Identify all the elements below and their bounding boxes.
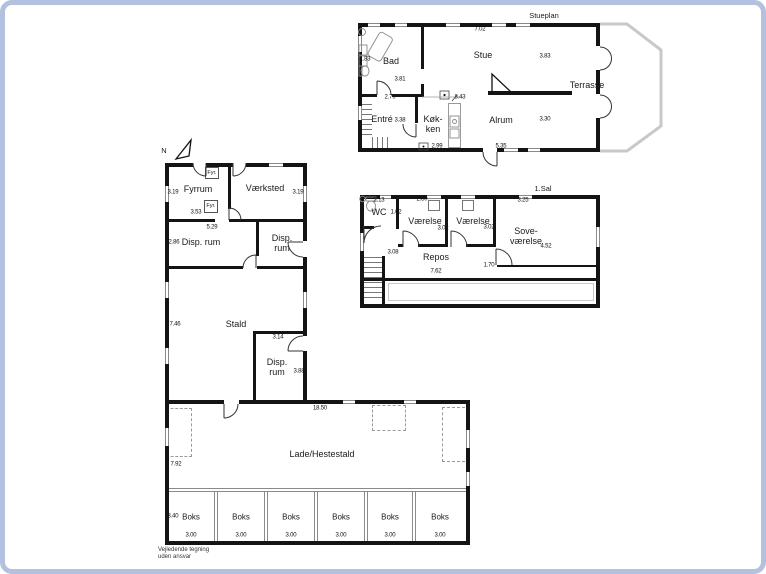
dim-wc-width: 2.13 [374, 198, 385, 205]
boks-partition [412, 492, 416, 541]
kitchen-counter [448, 103, 461, 148]
wall [229, 219, 303, 222]
door-arc [377, 81, 391, 95]
wall [445, 195, 448, 247]
dim-corridor-long: 8.43 [455, 95, 466, 102]
wall [466, 244, 493, 247]
open-connection-triangle [492, 74, 511, 92]
window-marker [596, 227, 600, 247]
wall [257, 266, 303, 269]
chimney-symbol [440, 91, 449, 99]
dim-sovevaerelse-door: 1.70 [484, 263, 495, 270]
door-gap [303, 241, 307, 257]
plan-title-foerste-sal: 1.Sal [534, 185, 551, 193]
dim-entre: 3.38 [395, 118, 406, 125]
window-marker [269, 163, 283, 167]
wall [228, 163, 231, 209]
wall [398, 244, 403, 247]
dim-vaerelse1-width: 2.80 [417, 197, 428, 204]
window-marker [395, 23, 407, 27]
dim-vaerksted-height: 3.19 [293, 190, 304, 197]
wall [421, 23, 424, 69]
dormer-window [462, 200, 474, 211]
storage-area-dashed [166, 408, 192, 457]
door-arc [243, 255, 256, 268]
door-arc [224, 404, 238, 418]
room-label-entre: Entré [371, 115, 393, 125]
window-marker [368, 23, 380, 27]
wall [415, 97, 418, 123]
room-label-stue: Stue [474, 51, 493, 61]
room-label-stald: Stald [226, 320, 247, 330]
door-arc [496, 249, 512, 265]
toilet-icon [361, 66, 369, 76]
wall [165, 541, 470, 545]
dim-lade-height: 7.92 [171, 462, 182, 469]
window-marker [165, 428, 169, 446]
window-marker [303, 292, 307, 308]
window-marker [528, 148, 540, 152]
window-marker [492, 23, 506, 27]
roof-outline [388, 283, 594, 301]
door-arc [403, 124, 416, 137]
dim-bad-depth: 1.83 [360, 57, 371, 64]
door-arc [288, 336, 303, 351]
wall [165, 266, 243, 269]
dim-stue-height: 3.83 [540, 54, 551, 61]
wall [358, 148, 600, 152]
dim-boks-height: 3.40 [168, 514, 179, 521]
label-boks-1: Boks [182, 514, 200, 523]
terrace-outline [600, 24, 661, 151]
label-boks-5: Boks [381, 514, 399, 523]
window-marker [446, 23, 460, 27]
room-label-vaerksted: Værksted [246, 184, 285, 194]
window-marker [461, 195, 475, 199]
label-boks-3: Boks [282, 514, 300, 523]
room-label-bad: Bad [383, 57, 399, 67]
wall [253, 331, 256, 401]
disclaimer-note: Vejledende tegning uden ansvar [158, 547, 209, 561]
north-arrow [176, 140, 191, 159]
wall [165, 219, 215, 222]
plan-title-stueplan: Stueplan [529, 12, 559, 20]
room-label-fyrrum: Fyrrum [184, 185, 213, 195]
dim-vaerelse1-height: 3.02 [438, 226, 449, 233]
room-label-disp-rum-3: Disp. rum [267, 358, 288, 378]
window-marker [427, 195, 441, 199]
window-marker [165, 282, 169, 298]
room-label-disp-rum-2: Disp. rum [272, 234, 293, 254]
storage-area-dashed [372, 405, 406, 431]
room-label-wc: WC [372, 208, 387, 218]
dim-stald-height: 7.46 [170, 322, 181, 329]
label-boks-6: Boks [431, 514, 449, 523]
boks-partition [214, 492, 218, 541]
boks-partition [314, 492, 318, 541]
wall [165, 400, 224, 404]
window-marker [404, 400, 416, 404]
dim-sovevaerelse-width: 3.25 [518, 198, 529, 205]
wall [360, 226, 374, 229]
room-label-lade-hestestald: Lade/Hestestald [289, 450, 354, 460]
floor-plan-canvas: Stueplan Bad Stue Entré Køk- ken Alrum T… [0, 0, 766, 574]
dim-lade-width: 18.50 [313, 406, 327, 413]
boks-partition [364, 492, 368, 541]
door-gap [596, 94, 600, 118]
dim-alrum-width: 5.35 [496, 144, 507, 151]
wall [253, 331, 304, 334]
wall [360, 278, 600, 281]
label-fyr-2: Fyr. [206, 203, 215, 209]
wall [358, 94, 377, 97]
window-marker [516, 23, 530, 27]
french-door-arc [600, 47, 612, 70]
dim-boks-4: 3.00 [336, 533, 347, 540]
dim-disp1-height: 2.86 [169, 240, 180, 247]
door-gap [233, 163, 246, 167]
wall [360, 195, 364, 308]
wall [382, 256, 385, 304]
room-label-alrum: Alrum [489, 116, 513, 126]
dim-stue-width: 7.02 [475, 27, 486, 34]
dim-disp3-height: 3.88 [294, 369, 305, 376]
chimney-dot [443, 94, 445, 96]
door-gap [303, 336, 307, 351]
window-marker [358, 36, 362, 52]
dim-repos-width: 7.62 [431, 269, 442, 276]
wall [360, 304, 600, 308]
label-fyr-1: Fyr. [207, 170, 216, 176]
window-marker [303, 186, 307, 202]
dim-alrum-height: 3.30 [540, 117, 551, 124]
window-marker [165, 348, 169, 364]
dim-fyrrum-width: 3.53 [191, 210, 202, 217]
dim-koekken: 2.99 [432, 144, 443, 151]
door-arc [451, 231, 467, 247]
dim-boks-2: 3.00 [236, 533, 247, 540]
wall [493, 195, 496, 247]
room-label-disp-rum-1: Disp. rum [182, 238, 221, 248]
door-gap [596, 46, 600, 70]
dim-boks-3: 3.00 [286, 533, 297, 540]
dim-vaerelse2-height: 3.02 [484, 225, 495, 232]
room-label-koekken: Køk- ken [424, 115, 443, 135]
room-label-repos: Repos [423, 253, 449, 263]
dim-disp3-width: 3.14 [273, 335, 284, 342]
wall [596, 195, 600, 308]
dim-sovevaerelse-height: 4.52 [541, 244, 552, 251]
french-door-arc [600, 95, 612, 118]
label-boks-4: Boks [332, 514, 350, 523]
dim-wc-depth: 1.62 [391, 210, 402, 217]
dim-boks-5: 3.00 [385, 533, 396, 540]
room-label-sovevaerelse: Sove- værelse [510, 227, 542, 247]
dim-corridor: 2.79 [385, 95, 396, 102]
window-marker [358, 106, 362, 120]
label-boks-2: Boks [232, 514, 250, 523]
window-marker [466, 430, 470, 448]
dim-disp1-width: 5.29 [207, 225, 218, 232]
window-marker [466, 472, 470, 486]
door-arc [483, 152, 497, 166]
dim-repos-height: 3.08 [388, 250, 399, 257]
room-label-terrasse: Terrasse [570, 81, 605, 91]
dormer-window [428, 200, 440, 211]
window-marker [343, 400, 355, 404]
dim-bad-width: 3.81 [395, 77, 406, 84]
dim-fyrrum-height: 3.19 [168, 190, 179, 197]
north-label: N [161, 147, 166, 155]
boks-partition [264, 492, 268, 541]
wall [256, 222, 259, 256]
wall [418, 244, 448, 247]
knee-wall [497, 265, 596, 267]
wall [488, 91, 572, 95]
window-marker [360, 233, 364, 251]
dim-boks-1: 3.00 [186, 533, 197, 540]
door-arc [403, 231, 419, 247]
dim-boks-6: 3.00 [435, 533, 446, 540]
